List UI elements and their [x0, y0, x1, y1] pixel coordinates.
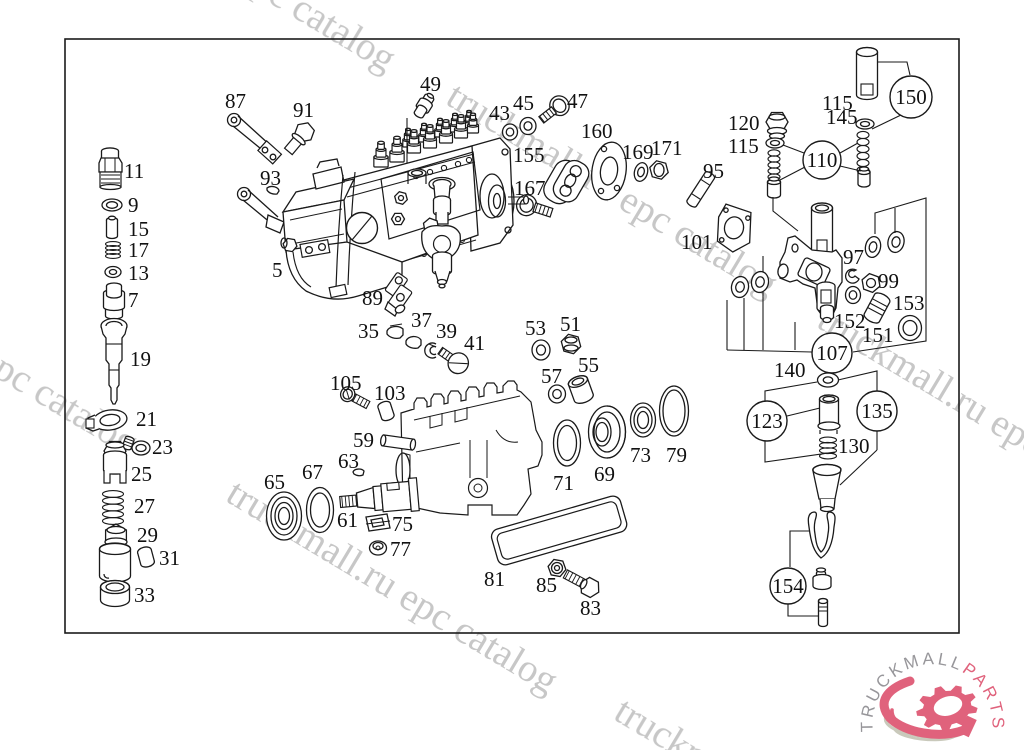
svg-text:67: 67: [302, 460, 323, 484]
svg-text:65: 65: [264, 470, 285, 494]
svg-text:5: 5: [272, 258, 283, 282]
svg-text:167: 167: [514, 176, 546, 200]
svg-text:93: 93: [260, 166, 281, 190]
svg-text:79: 79: [666, 443, 687, 467]
svg-text:75: 75: [392, 512, 413, 536]
svg-text:29: 29: [137, 523, 158, 547]
svg-text:43: 43: [489, 101, 510, 125]
svg-text:27: 27: [134, 494, 155, 518]
svg-text:31: 31: [159, 546, 180, 570]
svg-text:155: 155: [513, 143, 545, 167]
svg-text:19: 19: [130, 347, 151, 371]
svg-text:91: 91: [293, 98, 314, 122]
svg-text:73: 73: [630, 443, 651, 467]
svg-text:37: 37: [411, 308, 432, 332]
svg-text:53: 53: [525, 316, 546, 340]
svg-text:41: 41: [464, 331, 485, 355]
svg-text:115: 115: [728, 134, 759, 158]
svg-text:61: 61: [337, 508, 358, 532]
svg-text:150: 150: [895, 85, 927, 109]
svg-text:154: 154: [772, 574, 804, 598]
svg-text:151: 151: [862, 323, 894, 347]
svg-text:83: 83: [580, 596, 601, 620]
svg-text:35: 35: [358, 319, 379, 343]
svg-text:49: 49: [420, 72, 441, 96]
svg-text:17: 17: [128, 238, 149, 262]
svg-text:51: 51: [560, 312, 581, 336]
svg-text:39: 39: [436, 319, 457, 343]
svg-text:135: 135: [861, 399, 893, 423]
svg-text:171: 171: [651, 136, 683, 160]
svg-text:87: 87: [225, 89, 246, 113]
svg-text:11: 11: [124, 159, 144, 183]
svg-text:95: 95: [703, 159, 724, 183]
svg-text:99: 99: [878, 269, 899, 293]
svg-text:7: 7: [128, 288, 139, 312]
svg-text:81: 81: [484, 567, 505, 591]
svg-text:9: 9: [128, 193, 139, 217]
svg-text:140: 140: [774, 358, 806, 382]
svg-text:110: 110: [807, 148, 838, 172]
svg-text:47: 47: [567, 89, 588, 113]
svg-text:13: 13: [128, 261, 149, 285]
svg-text:101: 101: [681, 230, 713, 254]
svg-text:152: 152: [834, 309, 866, 333]
svg-text:107: 107: [816, 341, 848, 365]
svg-text:145: 145: [826, 105, 858, 129]
svg-text:123: 123: [751, 409, 783, 433]
svg-text:45: 45: [513, 91, 534, 115]
svg-text:57: 57: [541, 364, 562, 388]
svg-text:21: 21: [136, 407, 157, 431]
svg-text:153: 153: [893, 291, 925, 315]
svg-text:103: 103: [374, 381, 406, 405]
svg-text:71: 71: [553, 471, 574, 495]
svg-text:120: 120: [728, 111, 760, 135]
svg-text:97: 97: [843, 245, 864, 269]
svg-text:55: 55: [578, 353, 599, 377]
svg-text:169: 169: [622, 140, 654, 164]
svg-text:160: 160: [581, 119, 613, 143]
svg-text:33: 33: [134, 583, 155, 607]
svg-text:63: 63: [338, 449, 359, 473]
svg-text:85: 85: [536, 573, 557, 597]
svg-text:77: 77: [390, 537, 411, 561]
svg-text:25: 25: [131, 462, 152, 486]
svg-text:130: 130: [838, 434, 870, 458]
svg-text:105: 105: [330, 371, 362, 395]
svg-text:89: 89: [362, 286, 383, 310]
svg-text:69: 69: [594, 462, 615, 486]
svg-text:23: 23: [152, 435, 173, 459]
